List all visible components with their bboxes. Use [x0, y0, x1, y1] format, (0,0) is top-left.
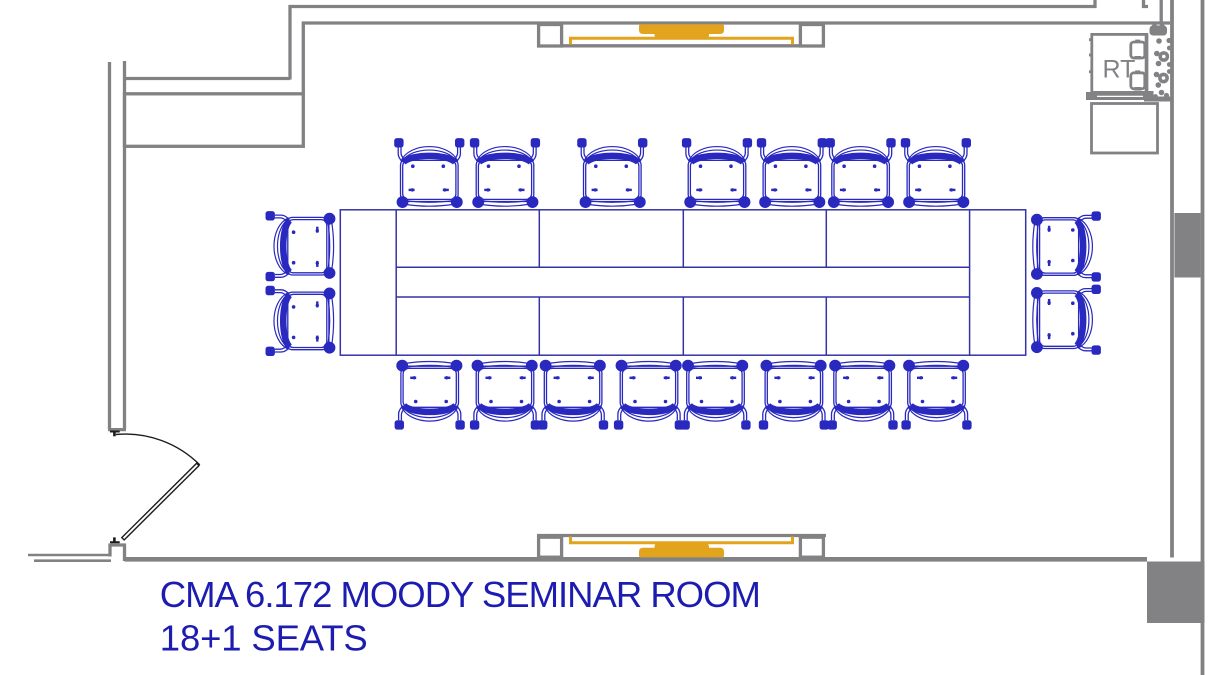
- svg-text:CMA 6.172 MOODY SEMINAR ROOM: CMA 6.172 MOODY SEMINAR ROOM: [160, 574, 760, 615]
- svg-text:18+1 SEATS: 18+1 SEATS: [160, 618, 368, 659]
- svg-text:RT: RT: [1103, 56, 1136, 84]
